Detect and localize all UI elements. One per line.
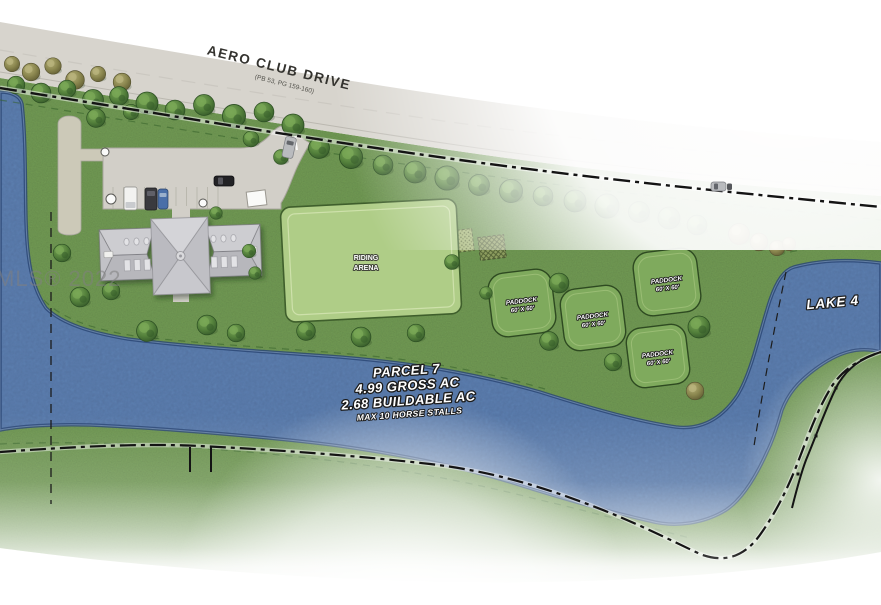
shed-structure: [246, 190, 267, 207]
wash-top-right: [300, 0, 881, 250]
central-hip-roof: [151, 217, 211, 295]
dark-van: [145, 188, 157, 210]
west-door: [104, 251, 113, 257]
arena-label-2: ARENA: [354, 265, 379, 272]
watermark: MLS® 2022: [0, 266, 122, 291]
arena-label-1: RIDING: [354, 255, 379, 262]
blue-car: [158, 189, 168, 209]
wash-line-tails: [0, 548, 881, 605]
white-truck: [124, 187, 137, 210]
black-sedan: [214, 176, 234, 186]
site-plan-canvas: AERO CLUB DRIVE (PB 53, PG 159-160) MLS®…: [0, 0, 881, 605]
site-plan: AERO CLUB DRIVE (PB 53, PG 159-160) MLS®…: [0, 0, 881, 605]
